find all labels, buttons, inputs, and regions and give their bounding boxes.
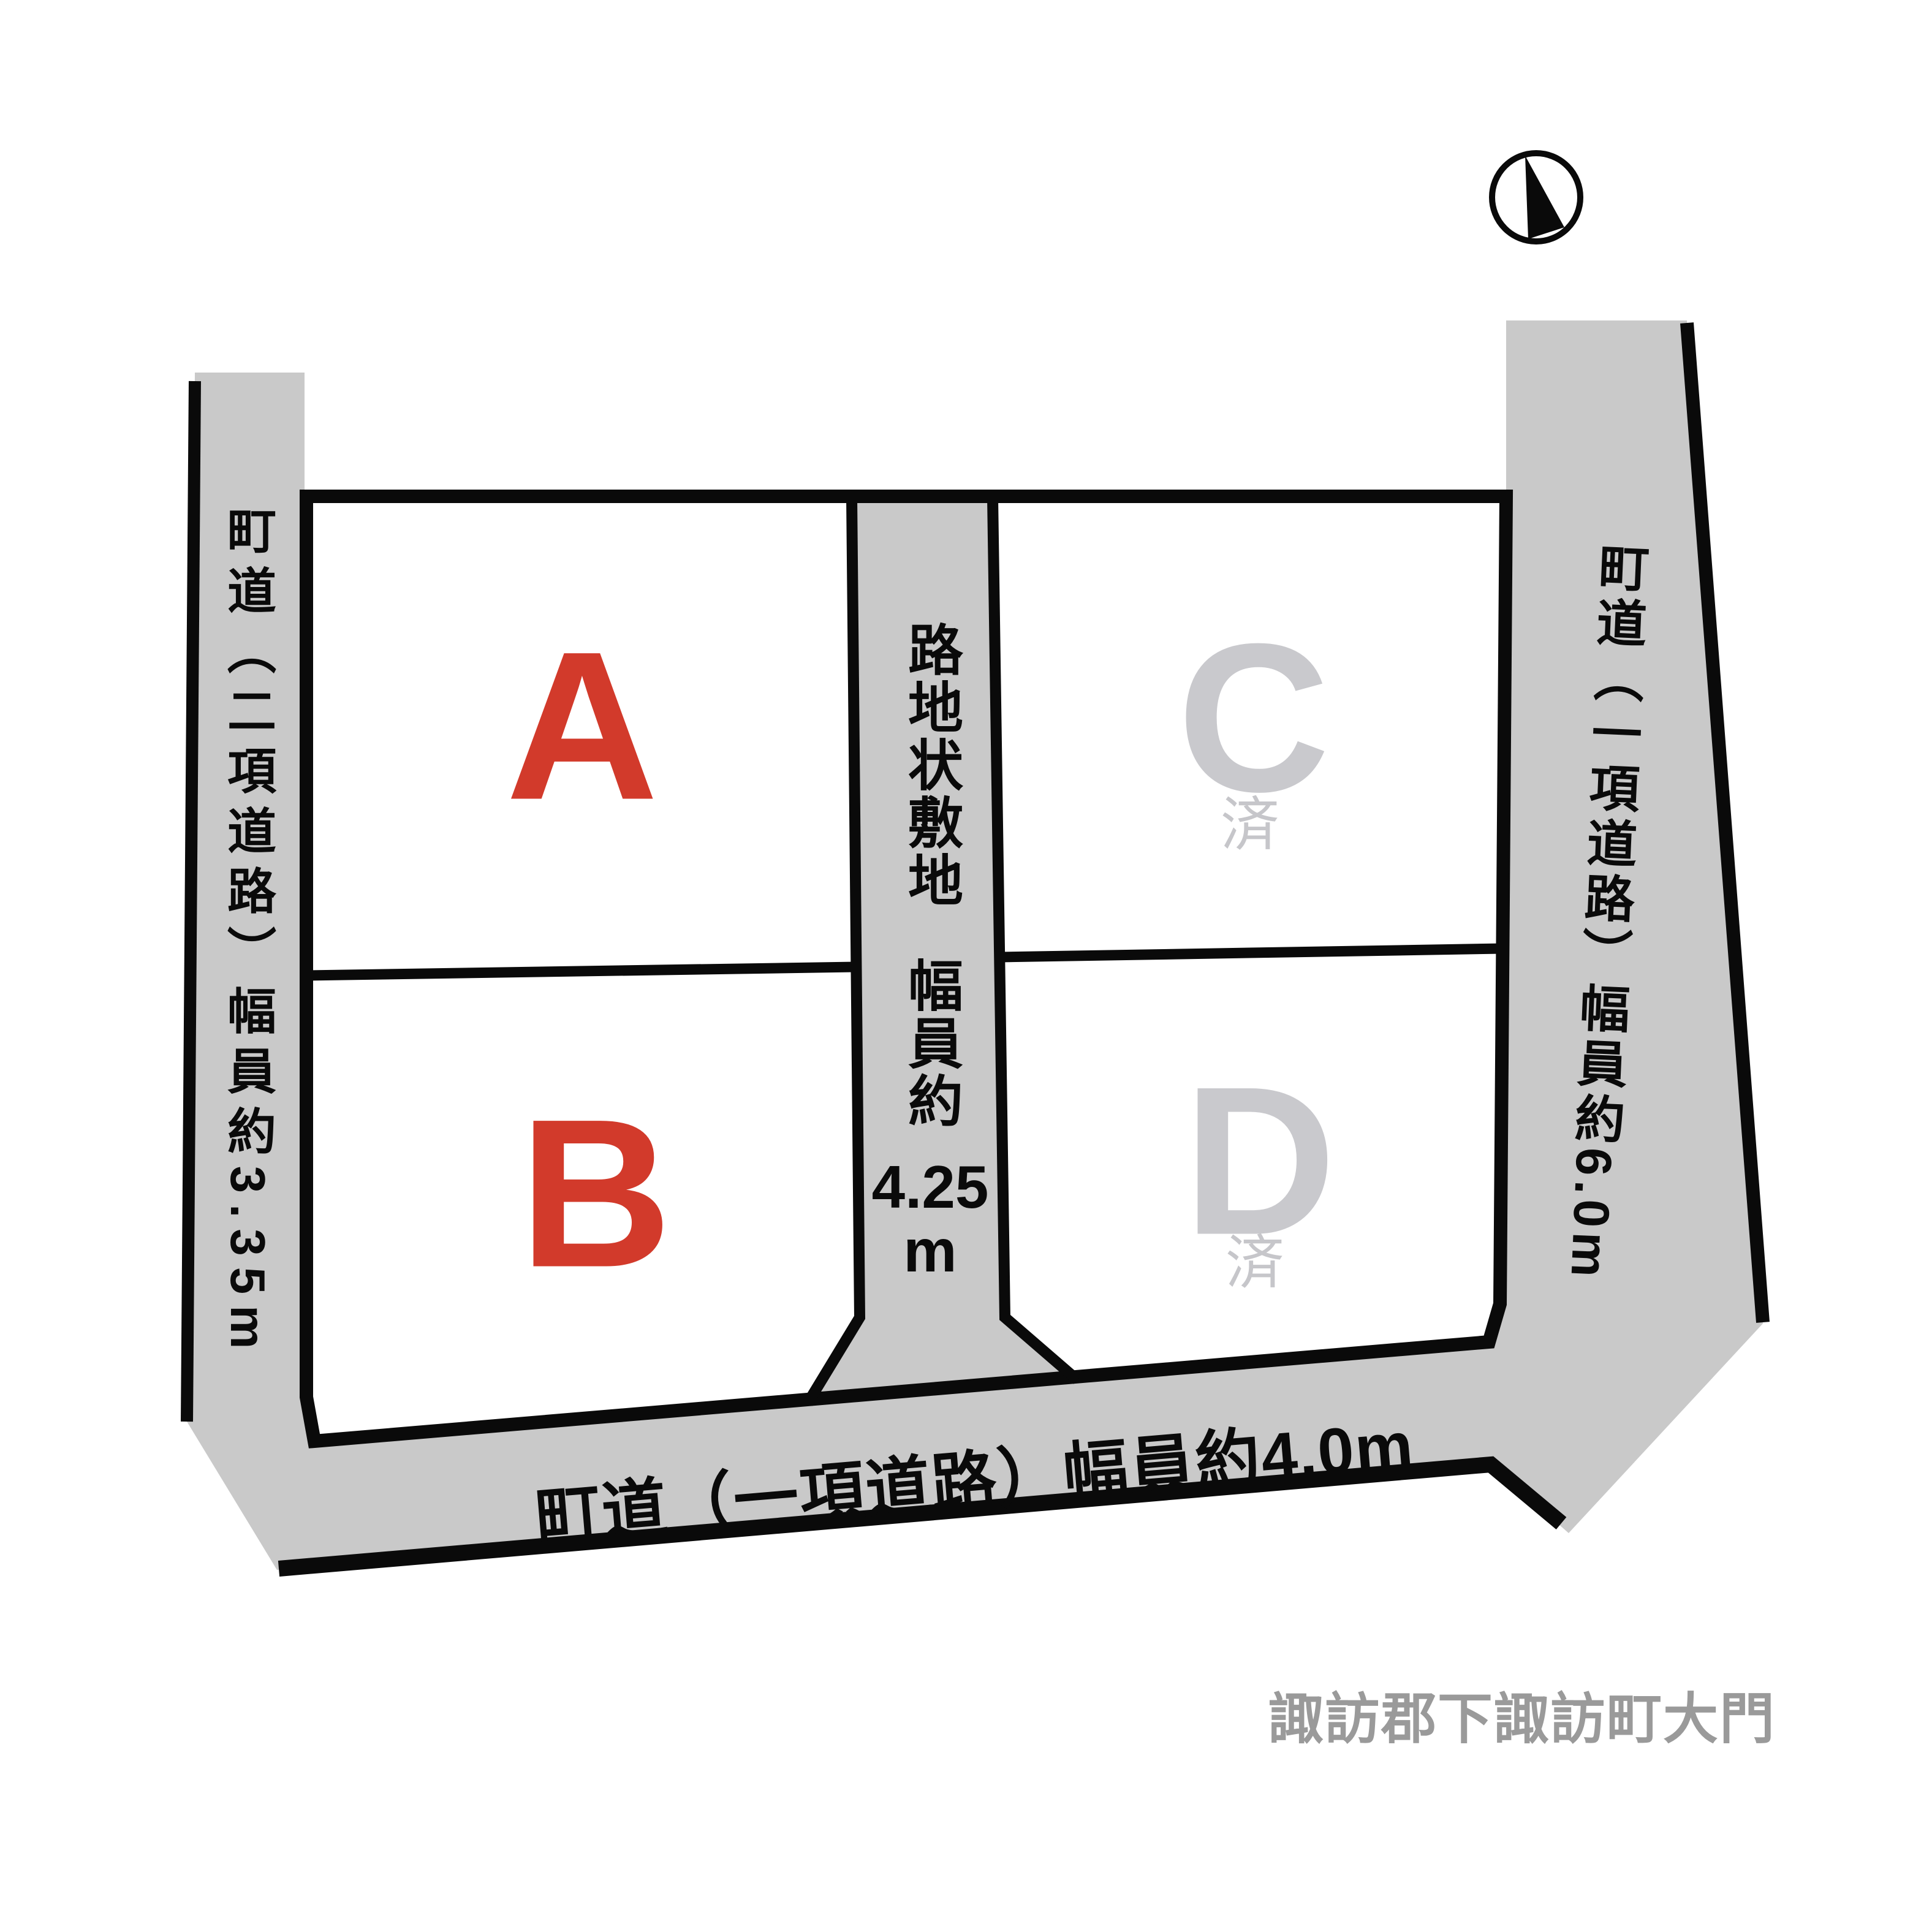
lot-c-sold-badge: 済: [1221, 796, 1279, 855]
strip-road-label: 路地状敷地 幅員約 4.25 m: [872, 621, 989, 1281]
strip-width-unit: m: [903, 1221, 957, 1281]
address-text: 諏訪郡下諏訪町大門: [1268, 1674, 1776, 1754]
strip-label-line1: 路地状敷地: [890, 621, 970, 909]
strip-right-edge: [993, 498, 1077, 1380]
plat-diagram: A B C D 済 済 町道（二項道路）幅員約3.35m 町道（一項道路）幅員約…: [0, 0, 1932, 1932]
left-road-label: 町道（二項道路）幅員約3.35m: [212, 506, 283, 1360]
lot-b-label: B: [519, 1088, 672, 1300]
lot-d-sold-badge: 済: [1225, 1234, 1284, 1293]
divider-lot-a-b: [306, 967, 855, 975]
north-arrow-icon: [1492, 153, 1580, 241]
left-road-outer-edge: [187, 381, 195, 1422]
strip-left-edge: [808, 498, 860, 1403]
strip-label-line2: 幅員約: [890, 957, 970, 1130]
strip-width-value: 4.25: [872, 1157, 989, 1217]
divider-lot-c-d: [1000, 949, 1502, 957]
lot-a-label: A: [506, 621, 658, 832]
